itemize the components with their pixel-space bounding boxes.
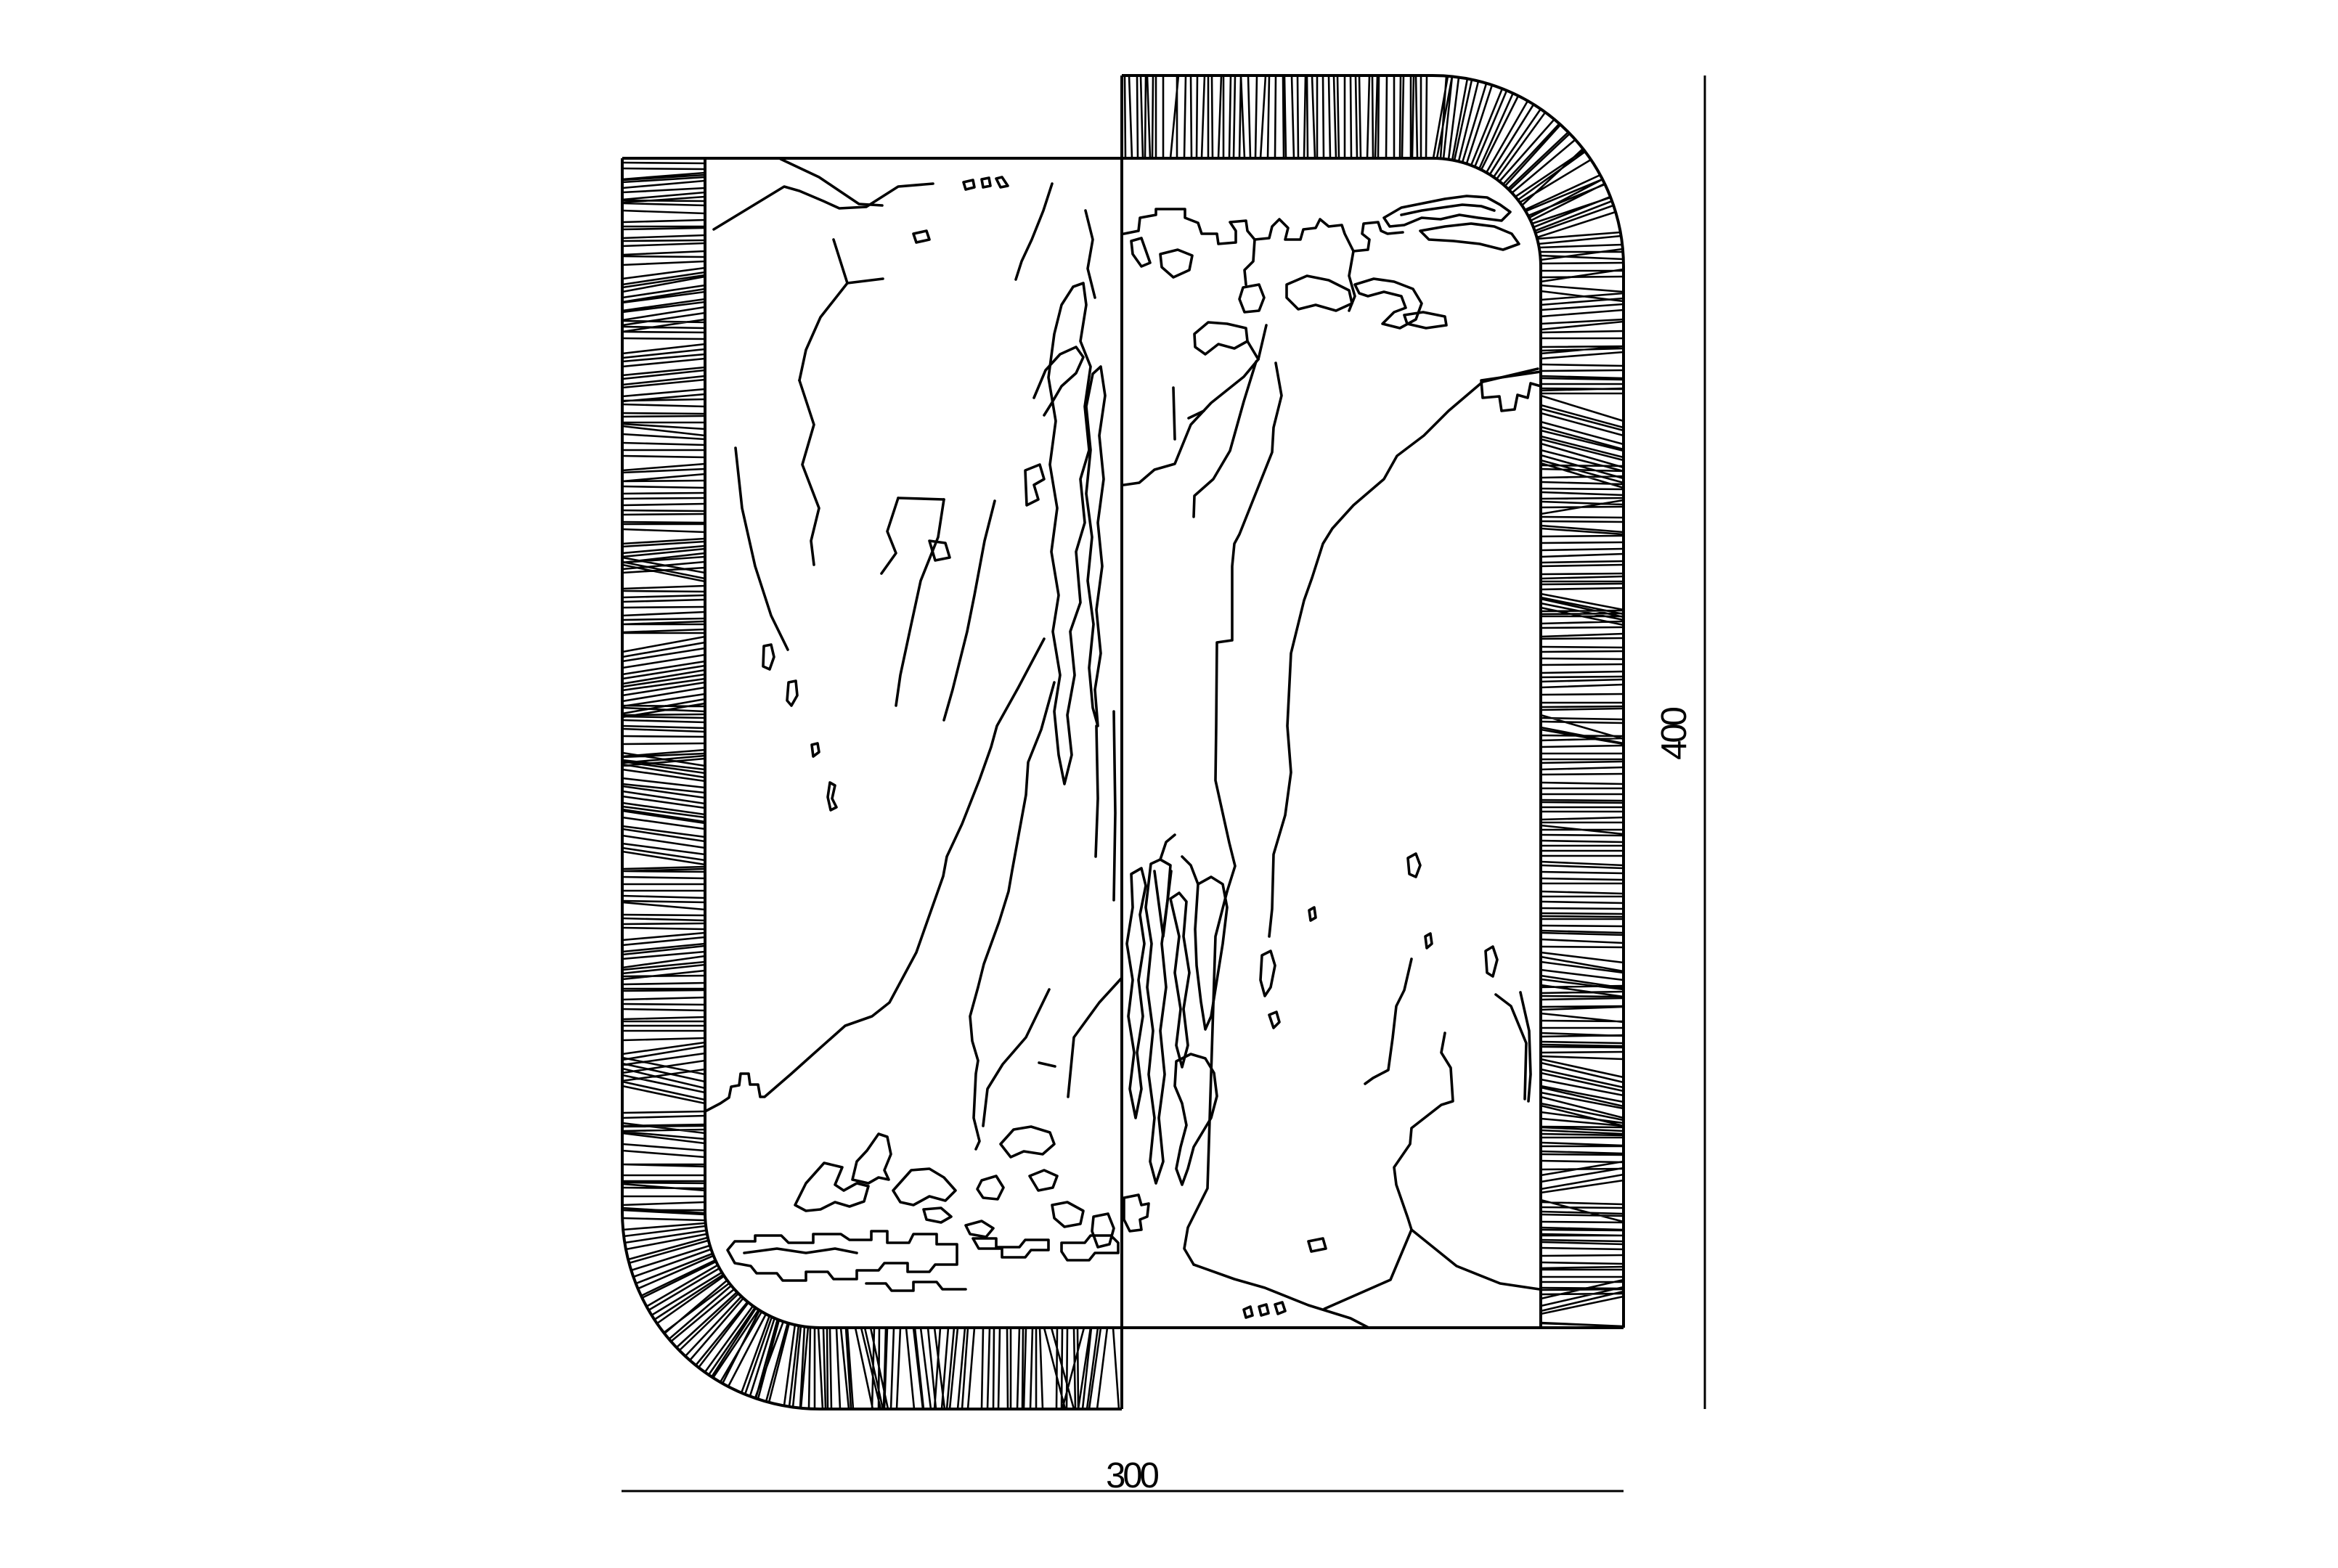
svg-text:300: 300: [1106, 1456, 1159, 1495]
svg-text:400: 400: [1655, 707, 1694, 760]
